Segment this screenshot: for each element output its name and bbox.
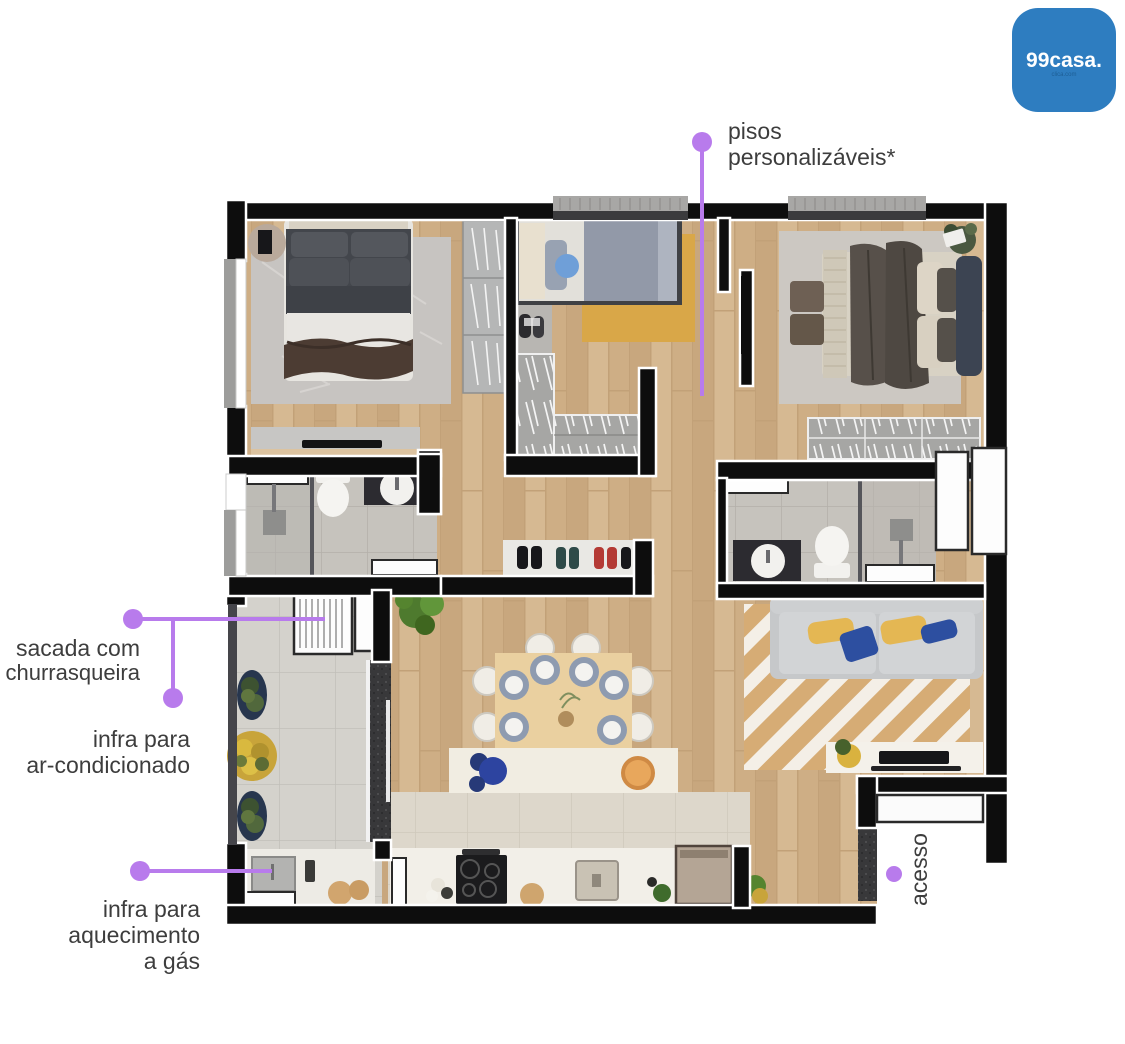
svg-text:clica.com: clica.com [1051,72,1076,78]
svg-text:ar-condicionado: ar-condicionado [26,752,190,778]
svg-text:aquecimento: aquecimento [68,922,200,948]
svg-text:infra para: infra para [93,726,190,752]
svg-text:pisos: pisos [728,118,782,144]
svg-text:personalizáveis*: personalizáveis* [728,144,896,170]
svg-text:sacada com: sacada com [16,635,140,661]
svg-text:a gás: a gás [144,948,200,974]
svg-text:99casa.: 99casa. [1026,49,1102,72]
svg-text:acesso: acesso [906,833,932,906]
svg-text:churrasqueira: churrasqueira [5,660,140,685]
svg-text:infra para: infra para [103,896,200,922]
